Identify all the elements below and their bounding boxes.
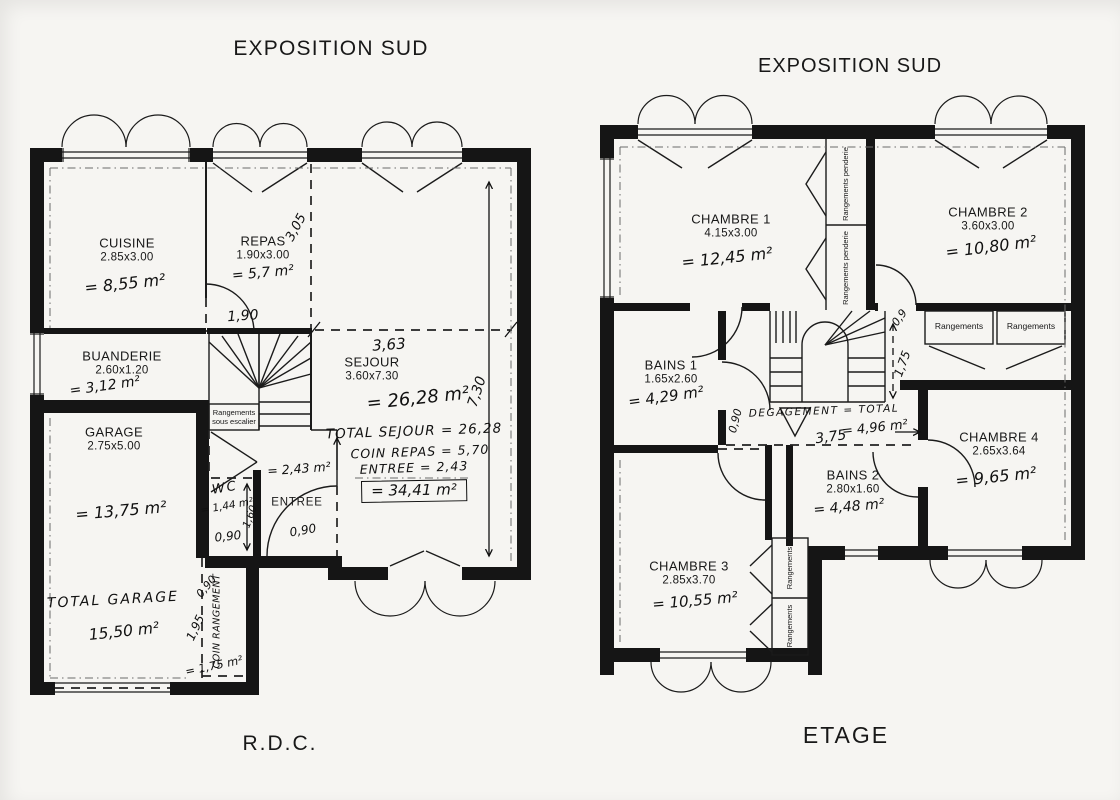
bains2-dims: 2.80x1.60 [826,483,879,496]
room-label-cuisine: CUISINE 2.85x3.00 [99,236,155,263]
chambre2-name: CHAMBRE 2 [948,205,1027,220]
total-general: = 34,41 m² [361,479,467,503]
entree-label: ENTREE [271,497,322,510]
rangements-sous-escalier-label: Rangements sous escalier [207,408,261,426]
chambre3-name: CHAMBRE 3 [649,559,728,574]
room-label-chambre4: CHAMBRE 4 2.65x3.64 [959,430,1038,457]
rangements-chambre3 [750,538,808,655]
sejour-dims: 3.60x7.30 [344,370,399,383]
rdc-exposure-title: EXPOSITION SUD [233,37,428,61]
buanderie-name: BUANDERIE [82,349,161,364]
etage-dimension-lines [893,324,920,432]
bains2-name: BAINS 2 [826,468,879,483]
rangement4-label: Rangements [786,605,794,648]
garage-name: GARAGE [85,425,143,440]
cuisine-name: CUISINE [99,236,155,251]
floor-plan-scan: EXPOSITION SUD EXPOSITION SUD R.D.C. ETA… [0,0,1120,800]
cuisine-dims: 2.85x3.00 [99,251,155,264]
etage-floor-label: ETAGE [803,723,889,749]
room-label-sejour: SEJOUR 3.60x7.30 [344,355,399,382]
room-label-chambre3: CHAMBRE 3 2.85x3.70 [649,559,728,586]
room-label-repas: REPAS 1.90x3.00 [236,234,289,261]
garage-dims: 2.75x5.00 [85,440,143,453]
chambre1-dims: 4.15x3.00 [691,227,770,240]
floor-plan-drawing [0,0,1120,800]
room-label-chambre1: CHAMBRE 1 4.15x3.00 [691,212,770,239]
rangements-chambre2 [925,311,1065,369]
room-label-chambre2: CHAMBRE 2 3.60x3.00 [948,205,1027,232]
repas-dims: 1.90x3.00 [236,249,289,262]
chambre2-dims: 3.60x3.00 [948,220,1027,233]
bains1-name: BAINS 1 [644,358,697,373]
rangement1-label: Rangements [935,322,983,332]
room-label-bains1: BAINS 1 1.65x2.60 [644,358,697,385]
room-label-buanderie: BUANDERIE 2.60x1.20 [82,349,161,376]
chambre4-dims: 2.65x3.64 [959,445,1038,458]
etage-exposure-title: EXPOSITION SUD [758,55,942,77]
penderie1-label: Rangements penderie [842,147,850,221]
chambre1-name: CHAMBRE 1 [691,212,770,227]
sejour-french-door [355,551,495,616]
chambre4-name: CHAMBRE 4 [959,430,1038,445]
rdc-floor-label: R.D.C. [243,732,318,756]
coin-rangement-label: COIN RANGEMENT [213,574,224,669]
sejour-name: SEJOUR [344,355,399,370]
rangement2-label: Rangements [1007,322,1055,332]
wc-width-dim: 0,90 [214,529,242,545]
room-label-garage: GARAGE 2.75x5.00 [85,425,143,452]
stair-width-dim: 1,90 [227,308,259,326]
sejour-width-dim: 3,63 [372,335,406,354]
garage-door [55,681,170,696]
penderie2-label: Rangements penderie [842,231,850,305]
room-label-bains2: BAINS 2 2.80x1.60 [826,468,879,495]
chambre3-dims: 2.85x3.70 [649,574,728,587]
rangement3-label: Rangements [786,547,794,590]
